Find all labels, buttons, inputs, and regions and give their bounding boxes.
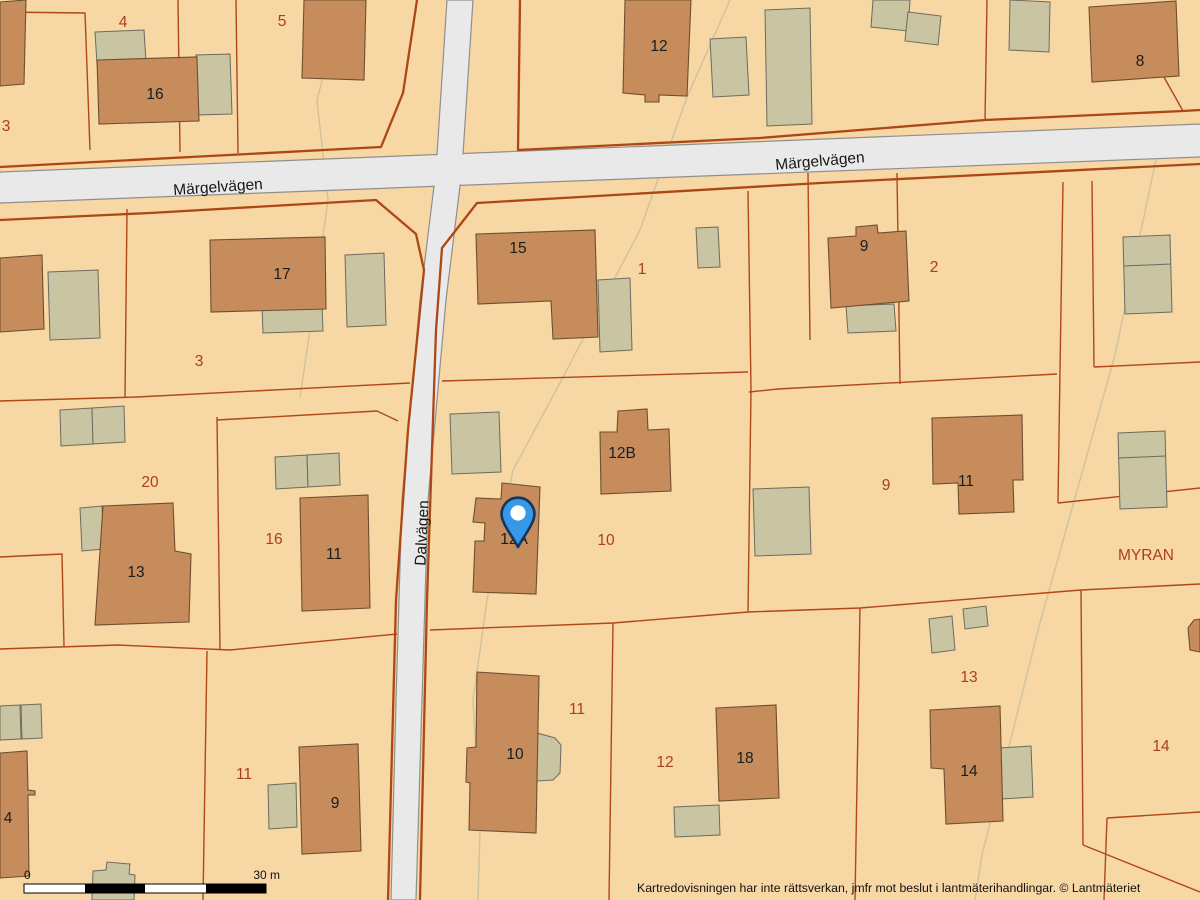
parcel-label: 20 bbox=[141, 474, 159, 491]
outbuilding bbox=[21, 704, 42, 739]
outbuilding bbox=[1009, 0, 1050, 52]
scale-start-label: 0 bbox=[24, 868, 31, 882]
scale-end-label: 30 m bbox=[253, 868, 280, 882]
building-label: 8 bbox=[1136, 53, 1145, 70]
building-label: 9 bbox=[860, 238, 869, 255]
scale-segment bbox=[145, 884, 206, 893]
parcel-label: 2 bbox=[930, 259, 939, 276]
parcel-label: 4 bbox=[119, 14, 128, 31]
building-label: 17 bbox=[273, 266, 290, 283]
building bbox=[0, 0, 26, 86]
outbuilding bbox=[674, 805, 720, 837]
outbuilding bbox=[48, 270, 100, 340]
parcel-label: 13 bbox=[960, 669, 977, 686]
building bbox=[302, 0, 366, 80]
building-label: 12 bbox=[650, 38, 667, 55]
outbuilding bbox=[196, 54, 232, 115]
attribution-text: Kartredovisningen har inte rättsverkan, … bbox=[637, 881, 1141, 895]
street-label: Dalvägen bbox=[412, 500, 432, 566]
scale-segment bbox=[24, 884, 85, 893]
outbuilding bbox=[0, 705, 21, 740]
outbuilding bbox=[929, 616, 955, 653]
outbuilding bbox=[963, 606, 988, 629]
building-label: 11 bbox=[326, 546, 342, 563]
building bbox=[466, 672, 539, 833]
outbuilding bbox=[1000, 746, 1033, 799]
building-label: 13 bbox=[127, 564, 144, 581]
outbuilding bbox=[268, 783, 297, 829]
building-label: 11 bbox=[958, 473, 974, 490]
outbuilding bbox=[60, 408, 93, 446]
location-pin-center bbox=[510, 505, 525, 520]
outbuilding bbox=[710, 37, 749, 97]
map-svg: Märgelvägen Märgelvägen Dalvägen 3 4 5 1… bbox=[0, 0, 1200, 900]
parcel-label: 5 bbox=[278, 13, 287, 30]
building bbox=[0, 255, 44, 332]
parcel-label: 3 bbox=[2, 118, 11, 135]
scale-segment bbox=[85, 884, 145, 893]
parcel-label: 9 bbox=[882, 477, 891, 494]
building-label: 18 bbox=[736, 750, 753, 767]
building-label: 12B bbox=[608, 445, 636, 462]
outbuilding bbox=[1118, 431, 1167, 509]
parcel-label: 12 bbox=[656, 754, 673, 771]
building-label: 16 bbox=[146, 86, 163, 103]
outbuilding bbox=[92, 406, 125, 444]
outbuilding bbox=[753, 487, 811, 556]
outbuilding bbox=[905, 12, 941, 45]
outbuilding bbox=[307, 453, 340, 487]
outbuilding bbox=[598, 278, 632, 352]
outbuilding bbox=[275, 455, 308, 489]
parcel-label: 11 bbox=[569, 701, 585, 718]
building bbox=[210, 237, 326, 312]
building-label: 4 bbox=[4, 810, 13, 827]
parcel-label: 10 bbox=[597, 532, 615, 549]
scale-segment bbox=[206, 884, 266, 893]
parcel-label: 3 bbox=[195, 353, 204, 370]
outbuilding bbox=[871, 0, 910, 31]
outbuilding bbox=[846, 304, 896, 333]
place-name-label: MYRAN bbox=[1118, 547, 1174, 564]
outbuilding bbox=[537, 733, 561, 781]
map-canvas[interactable]: Märgelvägen Märgelvägen Dalvägen 3 4 5 1… bbox=[0, 0, 1200, 900]
outbuilding bbox=[765, 8, 812, 126]
building bbox=[828, 225, 909, 308]
parcel-label: 16 bbox=[265, 531, 282, 548]
parcel-label: 1 bbox=[638, 261, 647, 278]
outbuilding bbox=[1123, 235, 1172, 314]
outbuilding bbox=[450, 412, 501, 474]
building-label: 9 bbox=[331, 795, 340, 812]
parcel-label: 11 bbox=[236, 766, 252, 783]
outbuilding bbox=[345, 253, 386, 327]
building-label: 14 bbox=[960, 763, 978, 780]
building-label: 15 bbox=[509, 240, 526, 257]
outbuilding bbox=[696, 227, 720, 268]
building bbox=[1089, 1, 1179, 82]
parcel-label: 14 bbox=[1152, 738, 1170, 755]
building-label: 10 bbox=[506, 746, 524, 763]
